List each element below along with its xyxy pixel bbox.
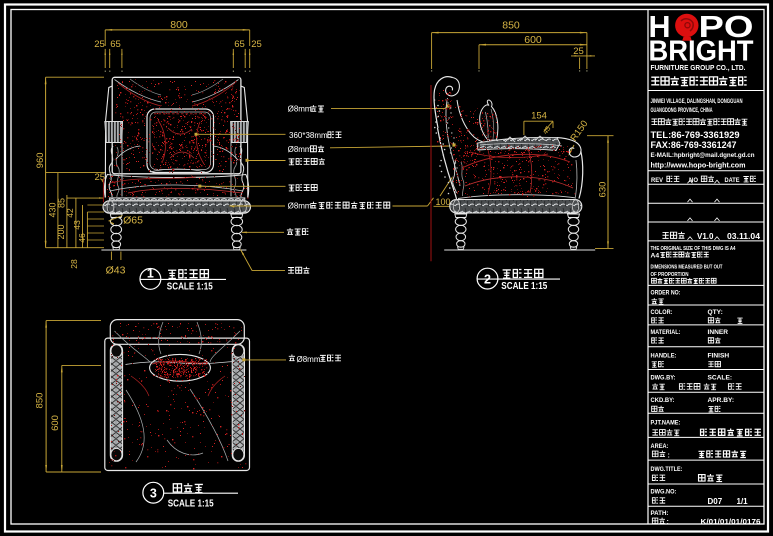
svg-text:http://www.hopo-bright.com: http://www.hopo-bright.com [651, 161, 746, 170]
svg-text:65: 65 [110, 39, 121, 50]
svg-text:DATE: DATE [725, 177, 740, 184]
svg-text:V1.0: V1.0 [697, 232, 714, 241]
svg-text:OF PROPORTION: OF PROPORTION [651, 272, 689, 278]
svg-text:3: 3 [150, 486, 157, 500]
svg-text:154: 154 [531, 111, 547, 122]
svg-text:42: 42 [65, 208, 75, 218]
svg-text:03.11.04: 03.11.04 [727, 232, 761, 241]
svg-text:HANDLE:: HANDLE: [651, 353, 677, 360]
svg-text:E-MAIL:hpbright@mail.dgnet.gd.: E-MAIL:hpbright@mail.dgnet.gd.cn [651, 152, 755, 159]
svg-text::: : [667, 519, 669, 526]
svg-text:ORDER NO:: ORDER NO: [651, 289, 681, 296]
svg-text:Ø65: Ø65 [123, 215, 143, 227]
svg-text:CKD.BY:: CKD.BY: [651, 397, 675, 404]
svg-text:QTY:: QTY: [708, 309, 723, 316]
svg-text:SCALE 1:15: SCALE 1:15 [501, 280, 547, 292]
svg-text:DWG.NO:: DWG.NO: [651, 489, 677, 496]
svg-text::: : [668, 453, 670, 460]
svg-text:DWG.TITLE:: DWG.TITLE: [651, 466, 683, 473]
svg-text:25: 25 [251, 39, 262, 50]
svg-text:A4: A4 [651, 252, 660, 259]
svg-text:PJT.NAME:: PJT.NAME: [651, 419, 681, 426]
svg-text:Ø8mm: Ø8mm [288, 105, 312, 114]
svg-text:Ø43: Ø43 [106, 265, 126, 277]
svg-text:GUANGDONG PROVINCE, CHINA: GUANGDONG PROVINCE, CHINA [651, 108, 713, 114]
svg-text:100: 100 [435, 197, 450, 207]
svg-text:Ø8mm: Ø8mm [297, 355, 321, 364]
svg-text:FINISH: FINISH [708, 353, 730, 360]
svg-text:FURNITURE GROUP CO., LTD.: FURNITURE GROUP CO., LTD. [651, 63, 746, 72]
svg-text:REV: REV [651, 177, 663, 184]
svg-text:DWG.BY:: DWG.BY: [651, 374, 676, 381]
svg-text:SCALE:: SCALE: [708, 374, 733, 381]
svg-text:MATERIAL:: MATERIAL: [651, 329, 681, 336]
svg-text:960: 960 [35, 152, 46, 168]
svg-text:600: 600 [50, 415, 61, 431]
svg-text:600: 600 [524, 34, 542, 46]
svg-text:D07: D07 [708, 497, 723, 506]
svg-text:AREA:: AREA: [651, 443, 669, 450]
svg-text:65: 65 [234, 39, 245, 50]
svg-text:APR.BY:: APR.BY: [708, 397, 735, 404]
svg-text:850: 850 [35, 393, 46, 409]
svg-text:INNER: INNER [708, 329, 729, 336]
svg-text:PATH:: PATH: [651, 510, 669, 517]
svg-text:SCALE 1:15: SCALE 1:15 [167, 281, 213, 293]
svg-text:JINWEI VILLAGE, DALINGSHAN, DO: JINWEI VILLAGE, DALINGSHAN, DONGGUAN [651, 99, 743, 105]
svg-text:360*38mm: 360*38mm [289, 131, 328, 140]
svg-text:FAX:86-769-3361247: FAX:86-769-3361247 [651, 140, 737, 150]
svg-text:630: 630 [598, 182, 609, 198]
svg-text:850: 850 [502, 20, 520, 32]
svg-text:K/01/01/01/0176: K/01/01/01/0176 [701, 517, 761, 526]
svg-text:Ø8mm: Ø8mm [288, 145, 312, 154]
svg-text:THE ORIGINAL SIZE OF THIS DWG: THE ORIGINAL SIZE OF THIS DWG IS A4 [651, 246, 737, 252]
svg-text:1/1: 1/1 [737, 497, 749, 506]
svg-text:Ø8mm: Ø8mm [288, 201, 312, 210]
svg-text:200: 200 [56, 224, 66, 239]
svg-text:1: 1 [147, 267, 154, 281]
svg-text:COLOR:: COLOR: [651, 309, 673, 316]
svg-text:25: 25 [94, 39, 105, 50]
svg-text:46: 46 [77, 233, 87, 243]
svg-text:43: 43 [72, 220, 82, 230]
svg-text:TEL:86-769-3361929: TEL:86-769-3361929 [651, 130, 740, 140]
svg-text:DIMENSIONS MEASURED BUT OUT: DIMENSIONS MEASURED BUT OUT [651, 264, 723, 270]
svg-text:28: 28 [69, 259, 79, 269]
svg-text:85: 85 [57, 198, 67, 208]
svg-text:800: 800 [170, 19, 188, 31]
svg-text:SCALE 1:15: SCALE 1:15 [168, 498, 214, 510]
